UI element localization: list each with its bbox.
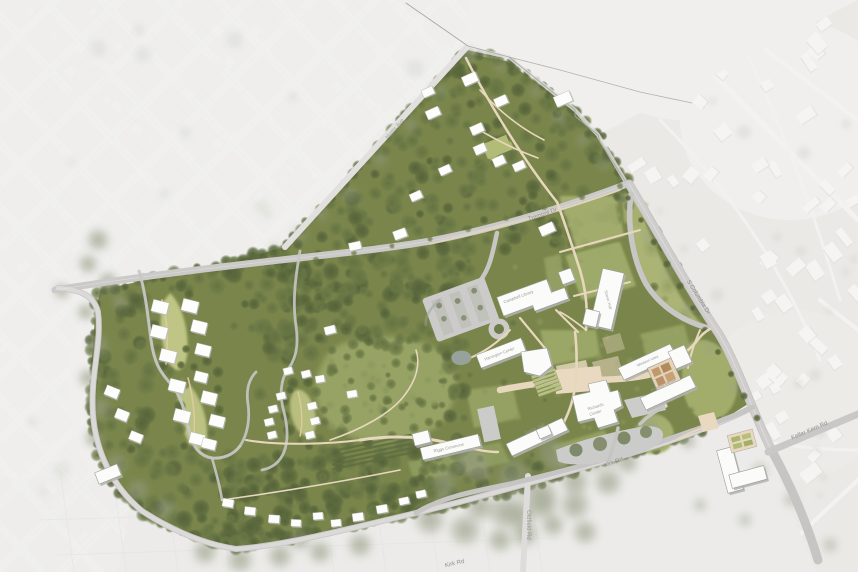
svg-text:Oldfield Rd: Oldfield Rd xyxy=(525,510,531,540)
